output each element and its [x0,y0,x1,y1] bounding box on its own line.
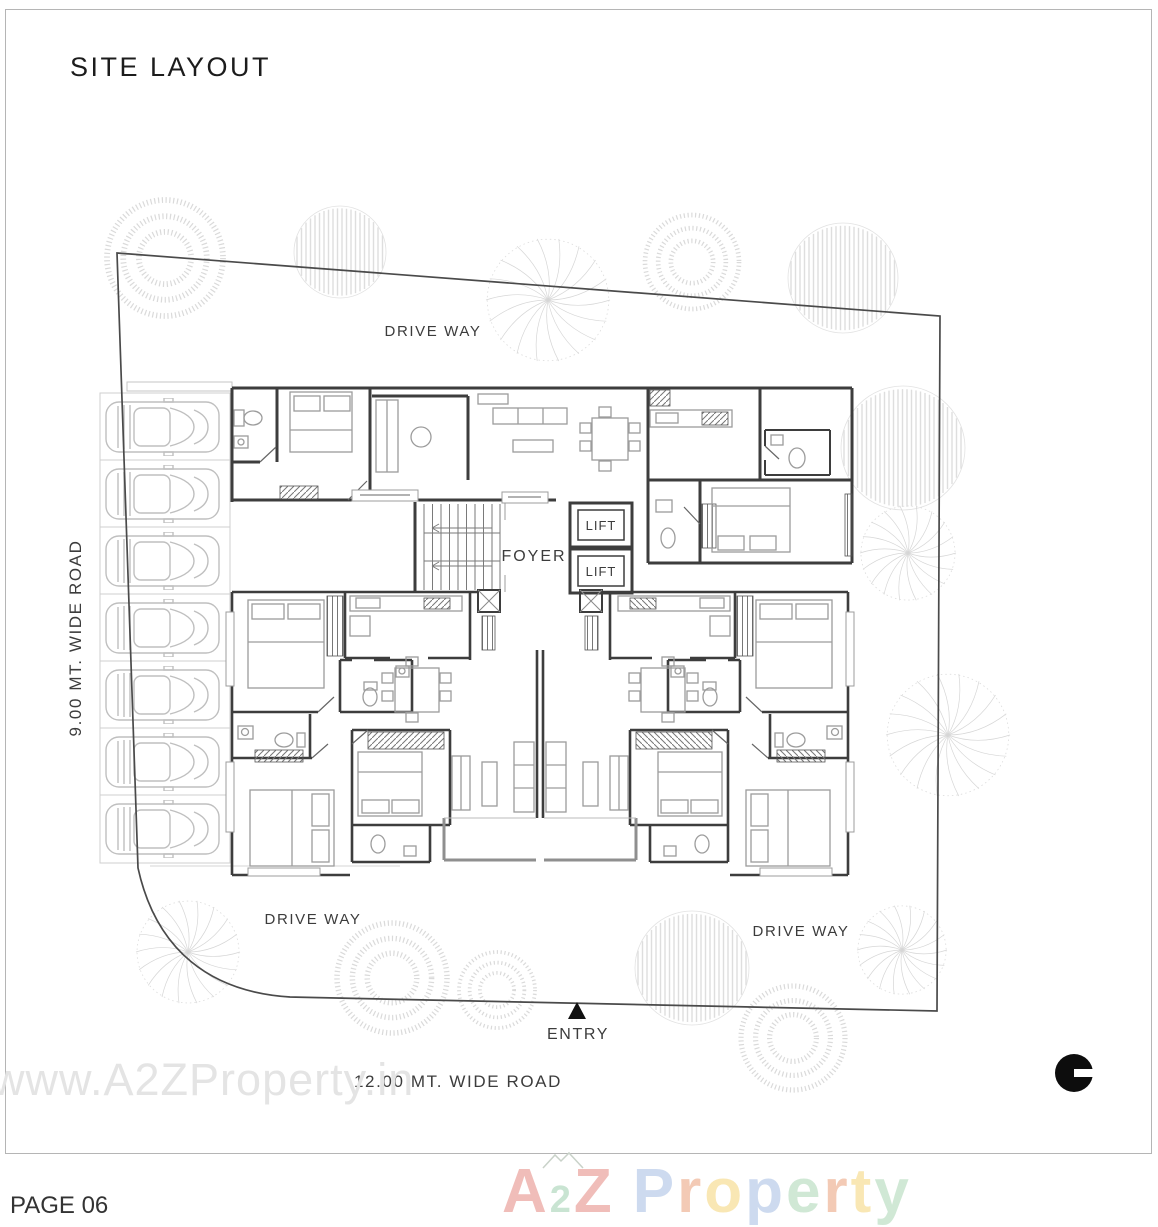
watermark: www.A2ZProperty.in [0,1054,414,1106]
page-title: SITE LAYOUT [70,52,271,83]
label-road-left: 9.00 MT. WIDE ROAD [66,540,86,737]
upper-windows [280,390,852,556]
tree-icon [741,986,845,1090]
lower-right-apartment [543,590,854,876]
tree-icon [841,386,965,510]
staircase [424,502,505,592]
balcony [444,818,536,860]
logo-letter: p [745,1157,786,1226]
tree-icon [136,901,240,1003]
logo-letter: y [874,1157,911,1226]
label-driveway-top: DRIVE WAY [385,323,482,340]
building [226,388,854,876]
label-driveway-bottom-right: DRIVE WAY [753,923,850,940]
logo-letter: e [786,1157,823,1226]
lift-shafts [570,503,632,593]
lower-left-apartment [226,590,537,876]
tree-icon [788,223,898,333]
trees-layer [107,200,1010,1090]
label-driveway-bottom-left: DRIVE WAY [265,911,362,928]
label-lift-upper: LIFT [586,518,617,533]
tree-icon [860,506,956,601]
logo-letter: o [704,1157,745,1226]
label-foyer: FOYER [501,548,566,566]
tree-icon [107,200,223,316]
tree-icon [857,906,947,995]
logo-letter: r [824,1157,851,1226]
tree-icon [886,674,1010,796]
label-entry: ENTRY [547,1026,609,1044]
tree-icon [337,923,447,1033]
logo-letter: 2 [550,1179,574,1221]
logo-mountain-icon [541,1150,585,1170]
plot-boundary [117,253,940,1011]
compound-wall-strip [127,382,232,391]
page-number: PAGE 06 [10,1192,108,1220]
logo-letter: r [677,1157,704,1226]
logo-letter: P [633,1157,677,1226]
plan-sheet: { "sheet": { "title": "SITE LAYOUT", "pa… [0,0,1158,1227]
label-lift-lower: LIFT [586,564,617,579]
parked-cars [106,398,219,858]
entry-arrow-icon [568,1002,586,1019]
logo-letter: t [851,1157,875,1226]
tree-icon [635,911,749,1025]
tree-icon [459,952,535,1028]
tree-icon [294,206,386,298]
window-sills [226,612,320,876]
tree-icon [486,239,610,361]
north-indicator-icon [1055,1054,1096,1092]
